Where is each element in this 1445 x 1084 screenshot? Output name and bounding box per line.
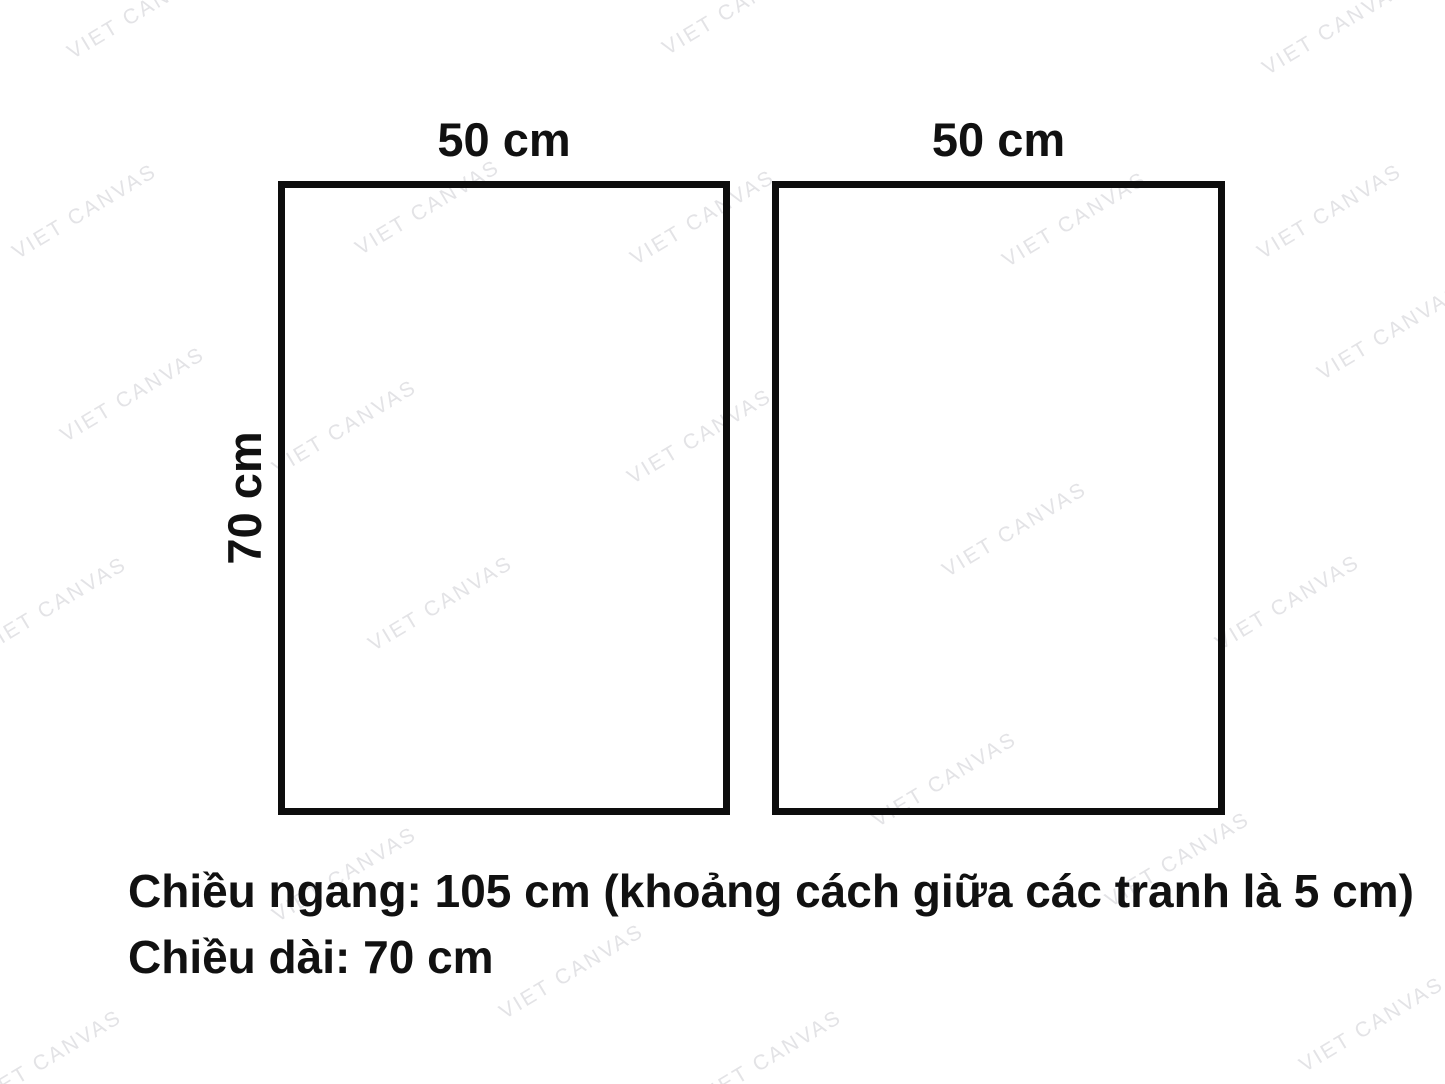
right-panel-width-label: 50 cm xyxy=(772,116,1225,166)
watermark-text: VIET CANVAS xyxy=(1211,550,1364,655)
left-panel-height-label: 70 cm xyxy=(221,428,269,568)
watermark-text: VIET CANVAS xyxy=(1258,0,1411,81)
watermark-text: VIET CANVAS xyxy=(693,1005,846,1084)
watermark-text: VIET CANVAS xyxy=(0,552,132,657)
watermark-text: VIET CANVAS xyxy=(658,0,811,61)
right-panel-outline xyxy=(772,181,1225,815)
watermark-text: VIET CANVAS xyxy=(63,0,216,65)
watermark-text: VIET CANVAS xyxy=(8,159,161,264)
left-panel-width-label: 50 cm xyxy=(278,116,730,166)
left-panel-outline xyxy=(278,181,730,815)
watermark-text: VIET CANVAS xyxy=(1253,159,1406,264)
size-diagram: VIET CANVASVIET CANVASVIET CANVASVIET CA… xyxy=(0,0,1445,1084)
caption-vertical-size: Chiều dài: 70 cm xyxy=(128,930,494,985)
caption-horizontal-size: Chiều ngang: 105 cm (khoảng cách giữa cá… xyxy=(128,864,1414,919)
watermark-text: VIET CANVAS xyxy=(0,1005,127,1084)
watermark-text: VIET CANVAS xyxy=(495,919,648,1024)
watermark-text: VIET CANVAS xyxy=(1313,280,1445,385)
watermark-text: VIET CANVAS xyxy=(56,342,209,447)
watermark-text: VIET CANVAS xyxy=(1295,972,1445,1077)
